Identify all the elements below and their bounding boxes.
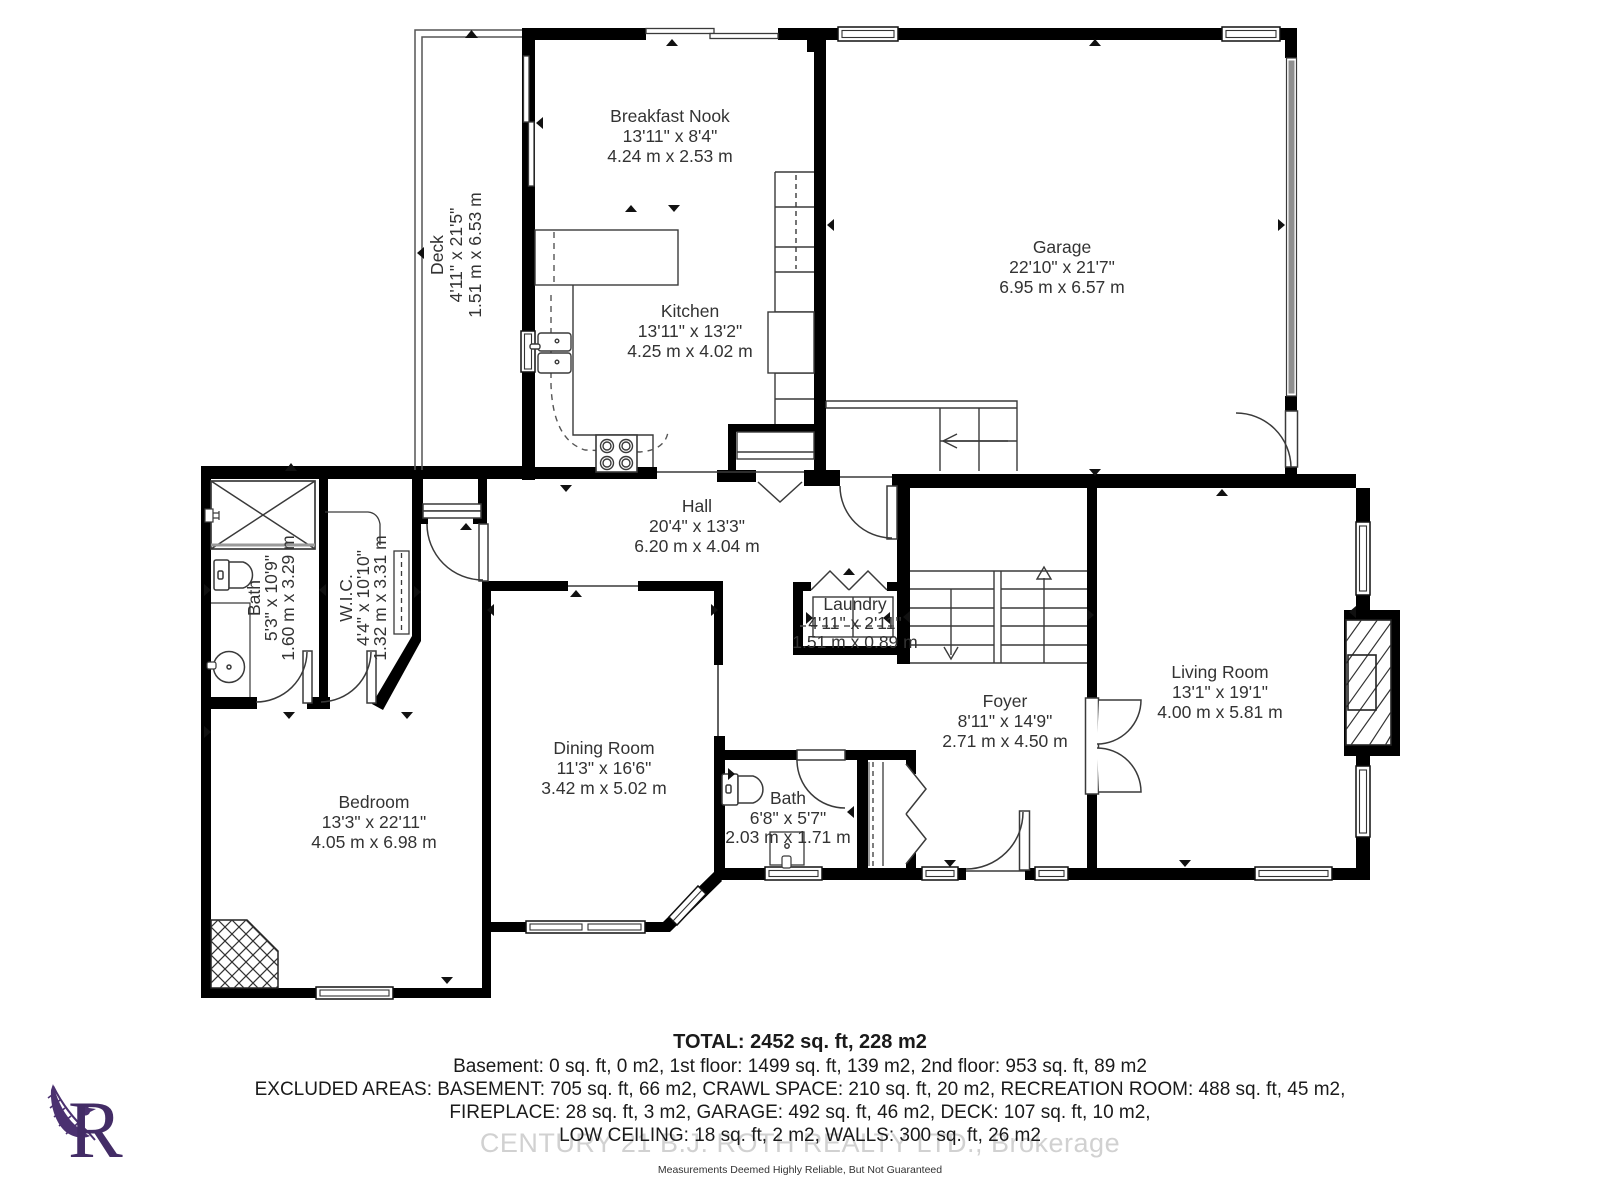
svg-text:Measurements Deemed Highly Rel: Measurements Deemed Highly Reliable, But… (658, 1164, 942, 1176)
svg-text:Bath: Bath (770, 788, 806, 808)
svg-text:4.24 m x 2.53 m: 4.24 m x 2.53 m (607, 146, 732, 166)
svg-text:1.32 m x 3.31 m: 1.32 m x 3.31 m (370, 535, 390, 660)
svg-text:13'3" x 22'11": 13'3" x 22'11" (322, 812, 426, 832)
svg-text:Foyer: Foyer (983, 691, 1028, 711)
svg-text:Living Room: Living Room (1171, 662, 1268, 682)
svg-text:Bedroom: Bedroom (338, 792, 409, 812)
svg-text:Dining Room: Dining Room (553, 738, 654, 758)
svg-text:TOTAL: 2452 sq. ft, 228 m2: TOTAL: 2452 sq. ft, 228 m2 (673, 1031, 927, 1053)
svg-text:R: R (68, 1084, 123, 1175)
svg-text:Laundry: Laundry (823, 594, 886, 614)
svg-text:4'11" x 21'5": 4'11" x 21'5" (446, 208, 466, 303)
svg-text:Garage: Garage (1033, 237, 1091, 257)
svg-text:20'4" x 13'3": 20'4" x 13'3" (649, 516, 745, 536)
svg-text:1.51 m x 6.53 m: 1.51 m x 6.53 m (465, 192, 485, 317)
svg-text:6'8" x 5'7": 6'8" x 5'7" (750, 808, 827, 828)
svg-text:2.03 m x 1.71 m: 2.03 m x 1.71 m (725, 827, 850, 847)
svg-text:LOW CEILING: 18 sq. ft, 2 m2,: LOW CEILING: 18 sq. ft, 2 m2, WALLS: 300… (559, 1125, 1041, 1146)
svg-text:Hall: Hall (682, 496, 712, 516)
svg-text:1.60 m x 3.29 m: 1.60 m x 3.29 m (278, 535, 298, 660)
svg-text:EXCLUDED AREAS: BASEMENT: 705: EXCLUDED AREAS: BASEMENT: 705 sq. ft, 66… (255, 1079, 1346, 1100)
svg-text:Breakfast Nook: Breakfast Nook (610, 106, 730, 126)
svg-text:13'1" x 19'1": 13'1" x 19'1" (1172, 682, 1268, 702)
svg-text:Basement: 0 sq. ft, 0 m2, 1st: Basement: 0 sq. ft, 0 m2, 1st floor: 149… (453, 1056, 1147, 1077)
svg-text:8'11" x 14'9": 8'11" x 14'9" (958, 711, 1053, 731)
svg-text:FIREPLACE: 28 sq. ft, 3 m2, GA: FIREPLACE: 28 sq. ft, 3 m2, GARAGE: 492 … (449, 1102, 1150, 1123)
svg-text:4.00 m x 5.81 m: 4.00 m x 5.81 m (1157, 702, 1282, 722)
svg-text:Kitchen: Kitchen (661, 301, 719, 321)
svg-text:13'11" x 13'2": 13'11" x 13'2" (638, 321, 742, 341)
svg-text:2.71 m x 4.50 m: 2.71 m x 4.50 m (942, 731, 1067, 751)
svg-text:3.42 m x 5.02 m: 3.42 m x 5.02 m (541, 778, 666, 798)
svg-text:13'11" x 8'4": 13'11" x 8'4" (623, 126, 718, 146)
svg-text:4'11" x 2'11": 4'11" x 2'11" (808, 613, 901, 633)
svg-text:1.51 m x 0.89 m: 1.51 m x 0.89 m (792, 632, 917, 652)
svg-text:22'10" x 21'7": 22'10" x 21'7" (1009, 257, 1115, 277)
svg-text:11'3" x 16'6": 11'3" x 16'6" (557, 758, 652, 778)
svg-text:4.05 m x 6.98 m: 4.05 m x 6.98 m (311, 832, 436, 852)
svg-text:6.20 m x 4.04 m: 6.20 m x 4.04 m (634, 536, 759, 556)
svg-text:6.95 m x 6.57 m: 6.95 m x 6.57 m (999, 277, 1124, 297)
svg-text:Deck: Deck (427, 235, 447, 275)
svg-text:4.25 m x 4.02 m: 4.25 m x 4.02 m (627, 341, 752, 361)
